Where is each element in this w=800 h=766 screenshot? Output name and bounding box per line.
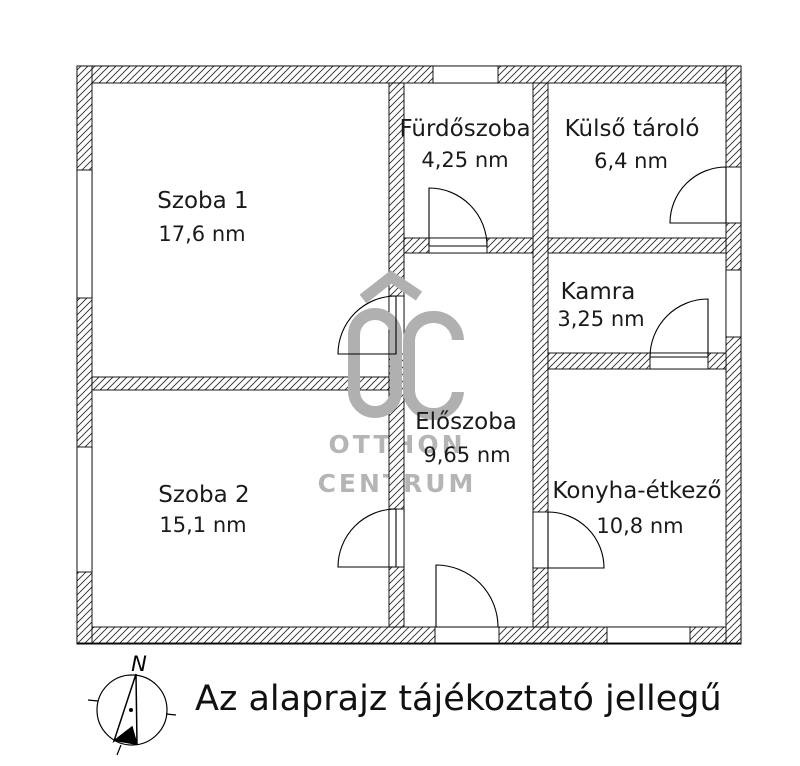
compass-center-dot	[129, 708, 133, 712]
room-area: 9,65 nm	[423, 443, 510, 467]
logo-letter-c-gap	[442, 340, 464, 392]
compass-icon: N	[88, 652, 176, 755]
window-szoba1	[77, 170, 92, 298]
room-area: 15,1 nm	[159, 513, 246, 537]
door-opening-konyha	[533, 512, 548, 568]
wall-right	[726, 66, 741, 643]
disclaimer-text: Az alaprajz tájékoztató jellegű	[195, 679, 722, 719]
wall-top	[77, 66, 741, 83]
door-opening-kulso-tarolo	[726, 167, 741, 223]
room-name: Konyha-étkező	[552, 478, 721, 504]
wall-szoba-divider	[92, 377, 389, 390]
room-name: Előszoba	[415, 409, 517, 435]
door-opening-eloszoba	[435, 627, 499, 643]
room-name: Külső tároló	[565, 116, 700, 142]
window-szoba2	[77, 447, 92, 572]
room-area: 3,25 nm	[557, 307, 644, 331]
window-kamra	[726, 270, 741, 337]
floor-plan-canvas: OTTHON CENTRUM	[0, 0, 800, 762]
room-name: Szoba 1	[157, 188, 248, 214]
window-top-furdoszoba	[433, 66, 498, 83]
room-name: Szoba 2	[158, 482, 249, 508]
room-area: 6,4 nm	[594, 149, 668, 173]
room-name: Fürdőszoba	[399, 116, 530, 142]
room-area: 10,8 nm	[596, 514, 683, 538]
room-name: Kamra	[561, 279, 636, 305]
room-area: 17,6 nm	[158, 222, 245, 246]
window-konyha	[607, 627, 690, 643]
wall-tarolo-kamra	[548, 238, 726, 253]
room-area: 4,25 nm	[421, 148, 508, 172]
compass-north-label: N	[131, 652, 147, 676]
door-opening-kamra	[650, 353, 708, 369]
